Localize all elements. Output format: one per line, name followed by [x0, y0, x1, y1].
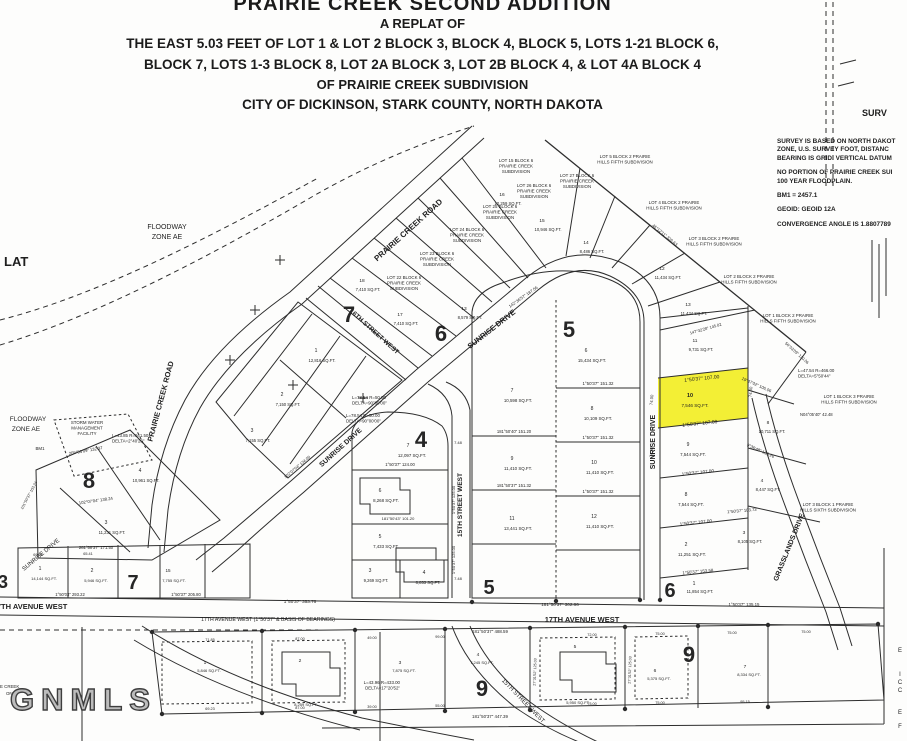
map-label: 11,434 SQ.FT.: [681, 311, 708, 316]
street-label: 15TH STREET WEST: [457, 473, 464, 537]
map-label: 10,711 SQ.FT.: [759, 429, 786, 434]
block-number: 5: [483, 577, 494, 599]
survey-note-line: ZONE, U.S. SURVEY FOOT, DISTANC: [777, 146, 895, 154]
map-label: 75.00: [801, 630, 811, 634]
map-label: 11,251 SQ.FT.: [678, 552, 706, 557]
map-label: 12: [591, 514, 597, 520]
street-label: GRASSLANDS DRIVE: [773, 512, 807, 582]
map-label: 9: [687, 442, 690, 448]
street-label: FLOODWAY: [147, 224, 187, 231]
block-number: 8: [83, 468, 95, 493]
plat-map-page: PRAIRIE CREEK ROADPRAIRIE CREEK ROADSUNR…: [0, 0, 907, 741]
map-label: 73.00: [587, 702, 597, 706]
title-block: PRAIRIE CREEK SECOND ADDITION A REPLAT O…: [0, 0, 845, 115]
map-label: 1°50'37" 135.15: [728, 602, 760, 607]
street-label: ZONE AE: [12, 426, 41, 433]
map-label: 1°50'37" 107.00: [679, 518, 712, 526]
map-label: 87.00: [295, 706, 305, 710]
map-label: 1°50'37" 151.32: [582, 381, 614, 386]
map-label: F: [898, 724, 902, 730]
adjacent-subdivision-label: LOT 23 BLOCK 6PRAIRIE CREEKSUBDIVISION: [420, 251, 455, 267]
map-label: 10,961 SQ.FT.: [133, 478, 160, 483]
adjacent-subdivision-label: LOT 1 BLOCK 2 PRAIRIEHILLS FIFTH SUBDIVI…: [760, 313, 815, 324]
adjacent-subdivision-label: L=78.54 R=50.00DELTA=90°00'00": [352, 395, 387, 406]
plat-city-county: CITY OF DICKINSON, STARK COUNTY, NORTH D…: [0, 95, 845, 115]
map-label: 11: [509, 516, 514, 522]
street-label: 17TH AVENUE WEST (1°50'37" & BASIS OF BE…: [201, 617, 335, 623]
map-label: 181°50'37" 447.39: [472, 714, 508, 719]
map-label: 1°50'37" 353.76: [284, 599, 317, 604]
street-label: FLOODWAY: [10, 416, 47, 423]
map-label: 11,410 SQ.FT.: [586, 470, 614, 475]
block-number: 5: [563, 317, 575, 342]
map-label: 12: [659, 266, 665, 272]
map-label: 12,097 SQ.FT.: [398, 453, 426, 458]
adjacent-subdivision-label: LOT 22 BLOCK 6PRAIRIE CREEKSUBDIVISION: [387, 275, 422, 291]
map-label: 7.48: [454, 576, 463, 581]
adjacent-subdivision-label: LOT 24 BLOCK 6PRAIRIE CREEKSUBDIVISION: [450, 227, 485, 243]
map-label: 1°50'37" 153.58: [682, 568, 714, 576]
adjacent-subdivision-labels: LOT 22 BLOCK 6PRAIRIE CREEKSUBDIVISIONLO…: [71, 154, 877, 691]
survey-note-line: BM1 = 2457.1: [777, 192, 895, 200]
map-label: 8,853 SQ.FT.: [416, 580, 441, 585]
lot-and-dimension-labels: 1°50'37" 107.00107,546 SQ.FT.1°50'37" 10…: [0, 192, 903, 730]
map-label: 8,105 SQ.FT.: [738, 539, 763, 544]
map-label: 71.85: [205, 638, 215, 642]
map-label: 1°50'37" 124.00: [385, 462, 415, 467]
adjacent-subdivision-label: L=43.85 R=941.50DELTA=2°40'23": [112, 433, 149, 444]
map-label: 3: [399, 660, 402, 666]
street-label: 17TH AVENUE WEST: [545, 615, 620, 624]
map-label: 27°31'52" 125.03: [533, 658, 538, 686]
map-label: 27°31'52" 125.03: [628, 656, 633, 684]
map-label: 11,410 SQ.FT.: [504, 466, 532, 471]
map-label: 3: [105, 520, 108, 526]
plat-subdivision: OF PRAIRIE CREEK SUBDIVISION: [0, 75, 845, 95]
map-label: 10: [687, 393, 693, 399]
map-label: LAT: [4, 254, 28, 269]
plat-title: PRAIRIE CREEK SECOND ADDITION: [0, 0, 845, 15]
map-label: 5: [379, 534, 382, 540]
map-label: 12,816 SQ.FT.: [309, 358, 336, 363]
map-label: 7,410 SQ.FT.: [356, 287, 381, 292]
map-label: I: [899, 672, 901, 678]
map-label: 7,155 SQ.FT.: [246, 438, 271, 443]
adjacent-subdivision-label: LOT 15 BLOCK 6PRAIRIE CREEKSUBDIVISION: [499, 158, 534, 174]
map-label: 8: [767, 420, 770, 426]
adjacent-subdivision-label: STORM WATERMANAGEMENTFACILITY: [71, 420, 103, 436]
map-label: 17: [397, 312, 403, 318]
gnmls-watermark: GNMLS: [10, 682, 157, 718]
map-label: 95.15: [740, 700, 750, 704]
map-label: 16: [499, 192, 505, 198]
map-label: 15: [165, 568, 171, 573]
map-label: 9,731 SQ.FT.: [689, 347, 714, 352]
map-label: 9°36'48" 105.26: [746, 442, 776, 459]
map-label: 14,144 SQ.FT.: [31, 576, 57, 581]
map-label: 15: [539, 218, 545, 224]
map-label: 9: [511, 456, 514, 462]
adjacent-subdivision-label: LOT 3 BLOCK 2 PRAIRIEHILLS FIFTH SUBDIVI…: [686, 236, 741, 247]
adjacent-subdivision-label: LOT 3 BLOCK 1 PRAIRIEHILLS SIXTH SUBDIVI…: [800, 502, 856, 513]
map-label: 1: [315, 348, 318, 354]
map-label: N04°05'40" 42.48: [800, 412, 833, 417]
map-label: E: [898, 710, 902, 716]
map-label: 13,441 SQ.FT.: [504, 526, 532, 531]
map-label: 7: [744, 664, 747, 670]
block-number: 9: [683, 642, 695, 667]
survey-notes-heading: SURV: [862, 108, 887, 118]
map-label: 65.41: [83, 552, 93, 556]
block-number: 4: [415, 427, 428, 452]
map-label: 8: [591, 406, 594, 412]
plat-subtitle: A REPLAT OF: [0, 15, 845, 33]
map-label: 205°55'09" 132.37: [68, 445, 103, 456]
map-label: 87.00: [295, 637, 305, 641]
map-label: 11,854 SQ.FT.: [687, 589, 714, 594]
survey-note-line: CONVERGENCE ANGLE IS 1.8807789: [777, 221, 895, 229]
block-number: 7: [127, 572, 138, 594]
adjacent-subdivision-label: LOT 26 BLOCK 6PRAIRIE CREEKSUBDIVISION: [517, 183, 552, 199]
adjacent-subdivision-label: LOT 27 BLOCK 6PRAIRIE CREEKSUBDIVISION: [560, 173, 595, 189]
map-label: 7,544 SQ.FT.: [678, 502, 704, 507]
map-label: 14: [583, 240, 589, 246]
block-number: 9: [476, 676, 488, 701]
plat-replat-line-1: THE EAST 5.03 FEET OF LOT 1 & LOT 2 BLOC…: [0, 33, 845, 54]
map-label: 7: [407, 443, 410, 449]
map-label: 7,875 SQ.FT.: [392, 668, 416, 673]
map-label: 1: [204, 660, 207, 666]
map-label: 8,334 SQ.FT.: [737, 672, 761, 677]
map-label: 7: [511, 388, 514, 394]
map-label: 49.00: [367, 636, 377, 640]
map-label: 99.00: [435, 635, 445, 639]
map-label: 5: [574, 644, 577, 650]
map-label: 1°50'37" 151.32: [582, 489, 614, 494]
block-number: 3: [0, 572, 8, 592]
map-label: 1: [39, 566, 42, 572]
adjacent-subdivision-label: LOT 4 BLOCK 2 PRAIRIEHILLS FIFTH SUBDIVI…: [646, 200, 701, 211]
map-label: 7,544 SQ.FT.: [680, 452, 706, 457]
survey-notes: SURVEY IS BASED ON NORTH DAKOTZONE, U.S.…: [777, 138, 895, 229]
map-label: 55.00: [435, 704, 445, 708]
map-label: 13: [461, 306, 467, 312]
map-label: 4: [423, 570, 426, 576]
street-label: SUNRISE DRIVE: [650, 414, 657, 469]
adjacent-subdivision-label: LOT 25 BLOCK 6PRAIRIE CREEKSUBDIVISION: [483, 204, 518, 220]
map-label: 1°50'37" 125.00: [451, 545, 456, 574]
map-label: 11,410 SQ.FT.: [586, 524, 614, 529]
map-label: 75.00: [655, 632, 665, 636]
map-label: 3: [251, 428, 254, 434]
map-label: 8,579 SQ.FT.: [458, 315, 483, 320]
map-label: 1°50'37" 107.00: [681, 468, 714, 476]
survey-note-line: GEOID: GEOID 12A: [777, 206, 895, 214]
map-label: 69.55: [33, 553, 43, 557]
map-label: 7,150 SQ.FT.: [276, 402, 301, 407]
map-label: 10,598 SQ.FT.: [504, 398, 532, 403]
map-label: 74.00: [648, 394, 654, 406]
map-label: 18: [359, 278, 365, 284]
map-label: 147°32'28" 145.02: [689, 321, 723, 335]
block-number: 6: [435, 321, 447, 346]
map-label: 1: [693, 581, 696, 587]
map-label: 6: [379, 488, 382, 494]
map-label: 15,434 SQ.FT.: [578, 358, 606, 363]
map-label: C: [898, 680, 903, 686]
map-label: 10,259 SQ.FT.: [495, 201, 522, 206]
adjacent-subdivision-label: L=47.54 R=466.00DELTA=5°50'44": [798, 368, 835, 379]
map-label: 1°50'37" 125.00: [451, 485, 456, 514]
map-label: 7.48: [454, 440, 463, 445]
map-label: 281°50'37" 171.50: [79, 545, 114, 550]
map-label: 72.00: [587, 633, 597, 637]
map-label: 2: [299, 658, 302, 664]
map-label: 4: [477, 652, 480, 658]
map-label: 5,375 SQ.FT.: [647, 676, 671, 681]
map-label: 181°50'37" 151.32: [497, 483, 532, 488]
map-label: 101°50'37" 103.24: [20, 481, 38, 510]
street-label: 17TH AVENUE WEST: [0, 602, 68, 611]
adjacent-subdivision-label: L=43.96 R=433.00DELTA=17°20'52": [364, 680, 401, 691]
street-label: SUNRISE DRIVE: [318, 427, 363, 469]
adjacent-subdivision-label: LOT 5 BLOCK 2 PRAIRIEHILLS FIFTH SUBDIVI…: [597, 154, 652, 165]
map-label: 6: [654, 668, 657, 674]
map-label: 10,946 SQ.FT.: [535, 227, 562, 232]
map-label: 11: [693, 338, 698, 344]
map-label: 181°50'43" 101.20: [382, 516, 415, 521]
map-label: 7,245 SQ.FT.: [470, 660, 494, 665]
map-label: 4: [139, 468, 142, 474]
map-label: 181°50'37" 302.66: [541, 602, 579, 607]
map-label: 10,109 SQ.FT.: [584, 416, 612, 421]
map-label: 8,486 SQ.FT.: [580, 249, 605, 254]
map-label: 10: [591, 460, 597, 466]
adjacent-subdivision-label: LOT 2 BLOCK 2 PRAIRIEHILLS FIFTH SUBDIVI…: [721, 274, 776, 285]
survey-note-line: SURVEY IS BASED ON NORTH DAKOT: [777, 138, 895, 146]
map-label: 1°50'37" 103.73: [727, 507, 758, 515]
map-label: 2: [91, 568, 94, 574]
map-label: 1°50'03" 293.22: [55, 592, 85, 597]
map-label: 5,846 SQ.FT.: [197, 668, 221, 673]
survey-note-line: 100 YEAR FLOODPLAIN.: [777, 178, 895, 186]
map-label: 142°36'57" 187.56: [508, 285, 539, 309]
block-number: 6: [664, 580, 675, 602]
map-label: 102°07'04" 138.24: [78, 496, 113, 506]
map-label: 2: [281, 392, 284, 398]
map-label: 3: [743, 530, 746, 536]
plat-replat-line-2: BLOCK 7, LOTS 1-3 BLOCK 8, LOT 2A BLOCK …: [0, 54, 845, 75]
map-label: 75.00: [655, 701, 665, 705]
adjacent-subdivision-label: LOT 1 BLOCK 3 PRAIRIEHILLS FIFTH SUBDIVI…: [821, 394, 876, 405]
map-label: 7,433 SQ.FT.: [373, 544, 399, 549]
map-label: C: [898, 688, 903, 694]
survey-note-line: BEARING IS GRID. VERTICAL DATUM: [777, 155, 895, 163]
map-label: 13: [685, 302, 691, 308]
map-label: 181°50'40" 151.20: [497, 429, 532, 434]
map-label: 7,410 SQ.FT.: [394, 321, 419, 326]
adjacent-subdivision-label: L=78.54 R=50.00DELTA=90°00'00": [346, 413, 381, 424]
map-label: BM1: [35, 446, 45, 451]
map-label: 8,447 SQ.FT.: [756, 487, 781, 492]
map-label: 2: [685, 542, 688, 548]
map-label: 11,434 SQ.FT.: [655, 275, 682, 280]
map-label: 3: [369, 568, 372, 574]
map-label: 46°12'11" 326.63: [651, 223, 679, 248]
survey-note-line: NO PORTION OF PRAIRIE CREEK SUI: [777, 169, 895, 177]
map-label: 5,946 SQ.FT.: [84, 578, 108, 583]
map-label: 8,268 SQ.FT.: [373, 498, 399, 503]
map-label: 1°50'37" 205.80: [171, 592, 201, 597]
map-label: 181°50'37" 488.59: [472, 629, 508, 634]
map-label: 11,231 SQ.FT.: [99, 530, 126, 535]
street-label: 16TH STREET WEST: [348, 308, 400, 356]
street-label: SUNRISE DRIVE: [466, 308, 518, 351]
map-label: 8: [685, 492, 688, 498]
building-footprints: [282, 478, 616, 696]
map-label: 9,269 SQ.FT.: [364, 578, 389, 583]
map-label: 69.23: [205, 707, 215, 711]
map-label: 7,546 SQ.FT.: [681, 403, 708, 408]
map-label: 1°50'37" 151.32: [582, 435, 614, 440]
map-label: 74.00: [747, 386, 753, 398]
map-label: 4: [761, 478, 764, 484]
map-label: 75.00: [727, 631, 737, 635]
map-label: 6: [585, 348, 588, 354]
map-label: E: [898, 648, 902, 654]
map-label: 39.00: [367, 705, 377, 709]
street-label: ZONE AE: [152, 234, 183, 241]
map-label: 7,755 SQ.FT.: [162, 578, 186, 583]
block-number: 7: [343, 302, 355, 327]
